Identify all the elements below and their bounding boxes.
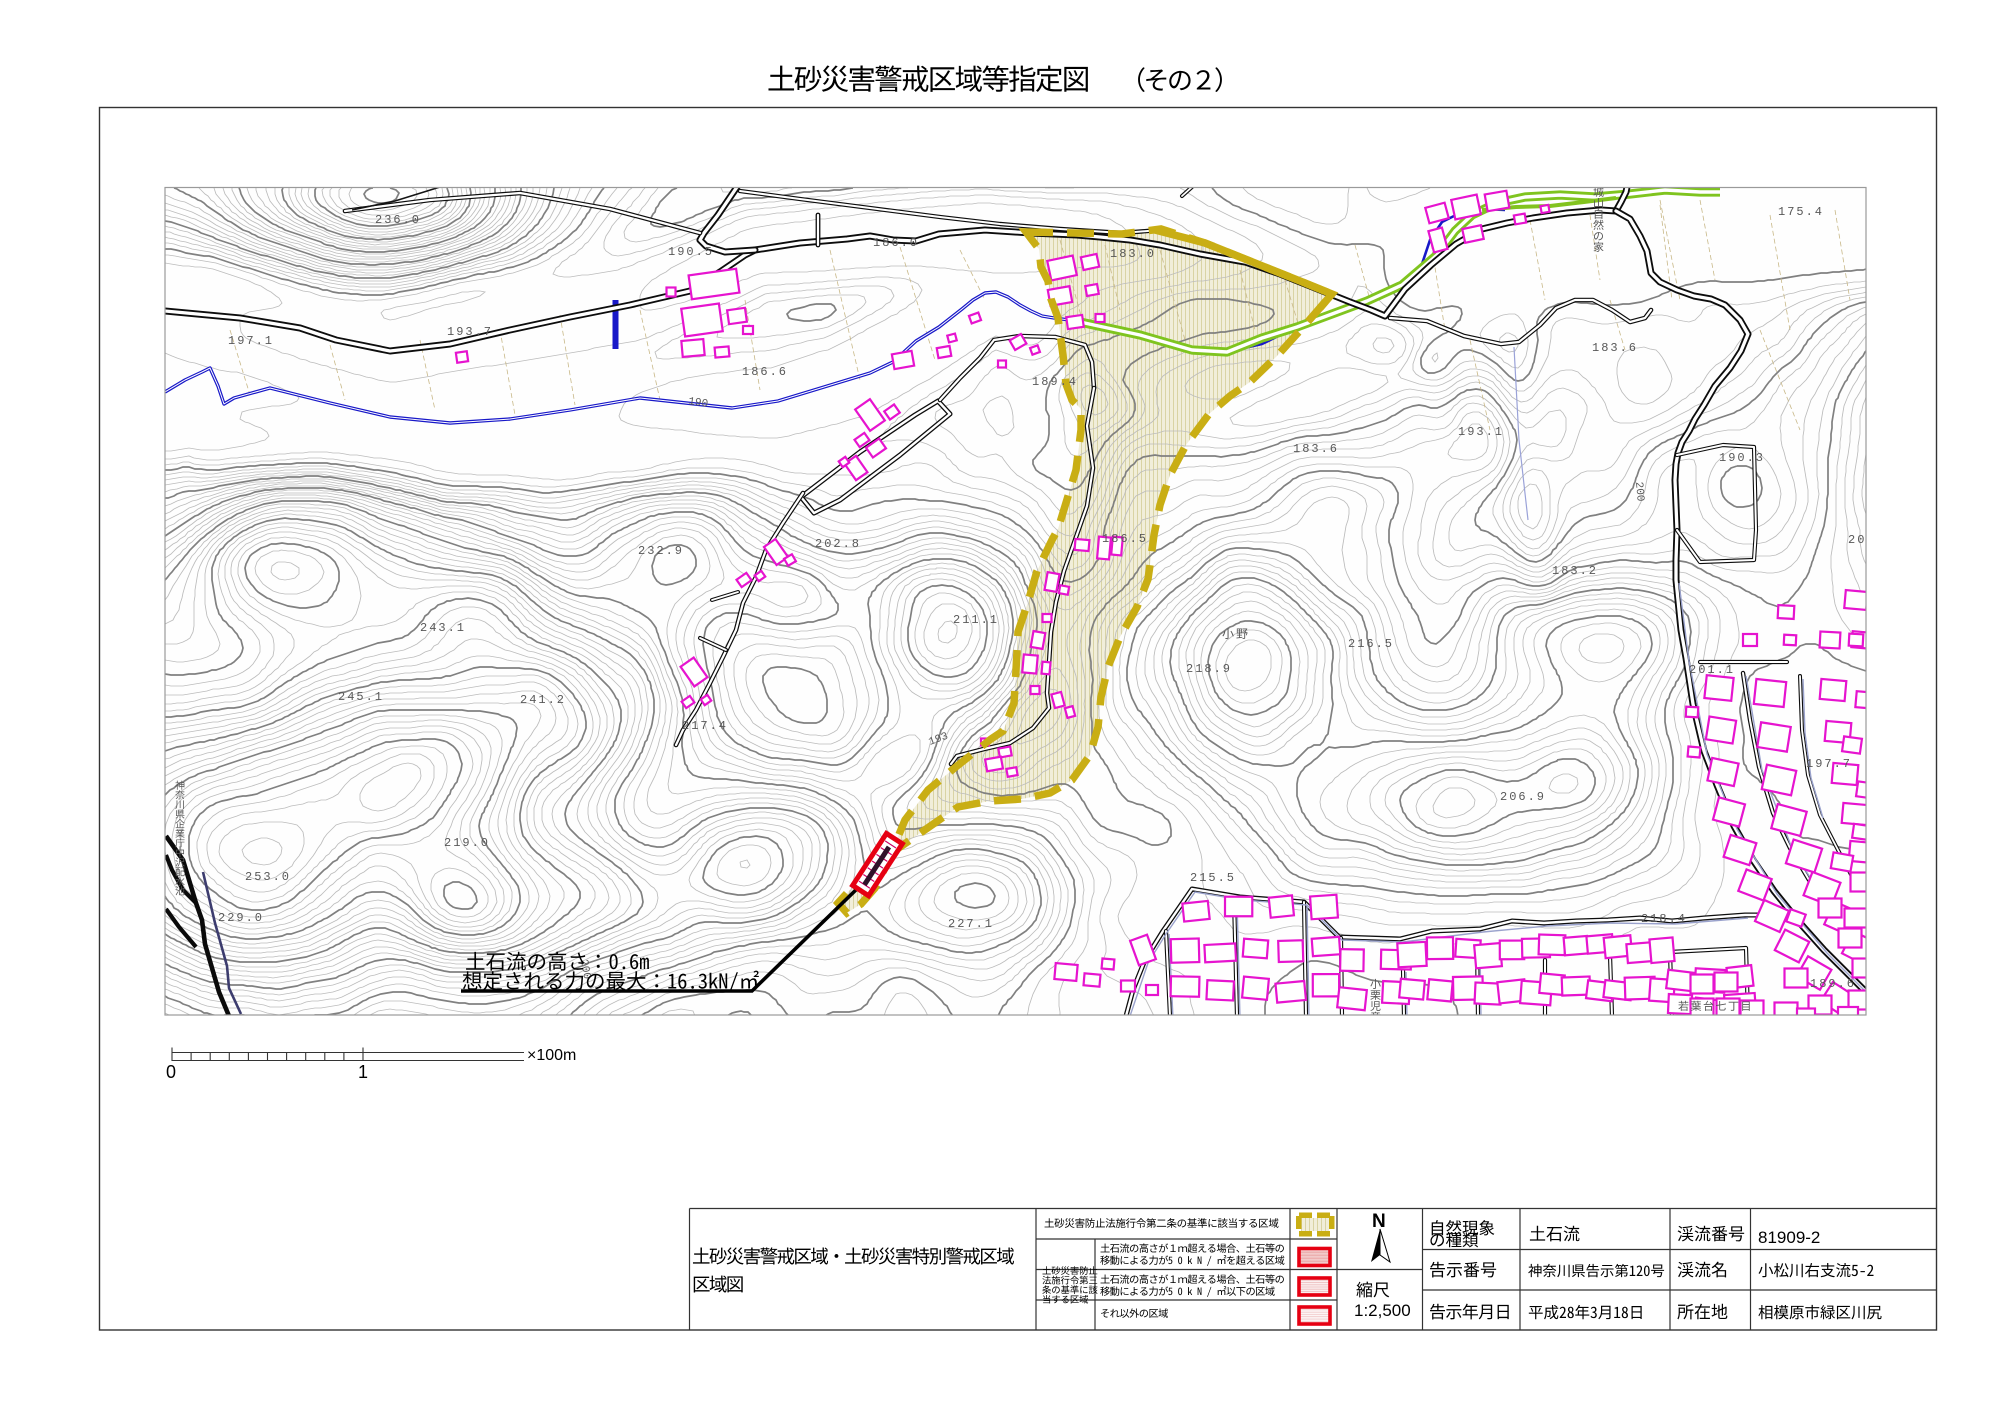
svg-text:190.5: 190.5	[668, 245, 714, 259]
svg-text:229.0: 229.0	[218, 911, 264, 925]
svg-text:218.9: 218.9	[1186, 662, 1232, 676]
svg-text:186.6: 186.6	[742, 365, 788, 379]
svg-text:189.6: 189.6	[1810, 977, 1856, 991]
svg-text:0: 0	[166, 1062, 176, 1082]
svg-text:201.1: 201.1	[1689, 663, 1735, 677]
svg-text:189.4: 189.4	[1032, 375, 1078, 389]
svg-text:216.5: 216.5	[1348, 637, 1394, 651]
svg-text:219.0: 219.0	[444, 836, 490, 850]
svg-text:1: 1	[358, 1062, 368, 1082]
svg-text:232.9: 232.9	[638, 544, 684, 558]
svg-text:193.7: 193.7	[447, 325, 493, 339]
svg-text:186.0: 186.0	[873, 236, 919, 250]
svg-text:236.0: 236.0	[375, 213, 421, 227]
svg-text:N: N	[1372, 1211, 1386, 1232]
svg-text:202.8: 202.8	[815, 537, 861, 551]
svg-text:245.1: 245.1	[338, 690, 384, 704]
svg-text:×100m: ×100m	[527, 1047, 576, 1064]
svg-text:193.1: 193.1	[1458, 425, 1504, 439]
svg-text:253.0: 253.0	[245, 870, 291, 884]
svg-text:1:2,500: 1:2,500	[1354, 1301, 1411, 1320]
svg-text:243.1: 243.1	[420, 621, 466, 635]
svg-text:197.1: 197.1	[228, 334, 274, 348]
svg-text:217.4: 217.4	[682, 719, 728, 733]
svg-text:241.2: 241.2	[520, 693, 566, 707]
svg-text:183.6: 183.6	[1293, 442, 1339, 456]
svg-text:175.4: 175.4	[1778, 205, 1824, 219]
svg-text:197.7: 197.7	[1806, 757, 1852, 771]
svg-text:206.9: 206.9	[1500, 790, 1546, 804]
svg-text:183.2: 183.2	[1552, 564, 1598, 578]
svg-text:190.3: 190.3	[1719, 451, 1765, 465]
svg-text:227.1: 227.1	[948, 917, 994, 931]
svg-text:215.5: 215.5	[1190, 871, 1236, 885]
svg-text:218.4: 218.4	[1641, 912, 1687, 926]
svg-text:183.0: 183.0	[1110, 247, 1156, 261]
svg-text:211.1: 211.1	[953, 613, 999, 627]
svg-text:200: 200	[1632, 481, 1646, 502]
svg-text:81909-2: 81909-2	[1758, 1228, 1820, 1247]
svg-text:186.5: 186.5	[1102, 532, 1148, 546]
svg-text:183.6: 183.6	[1592, 341, 1638, 355]
